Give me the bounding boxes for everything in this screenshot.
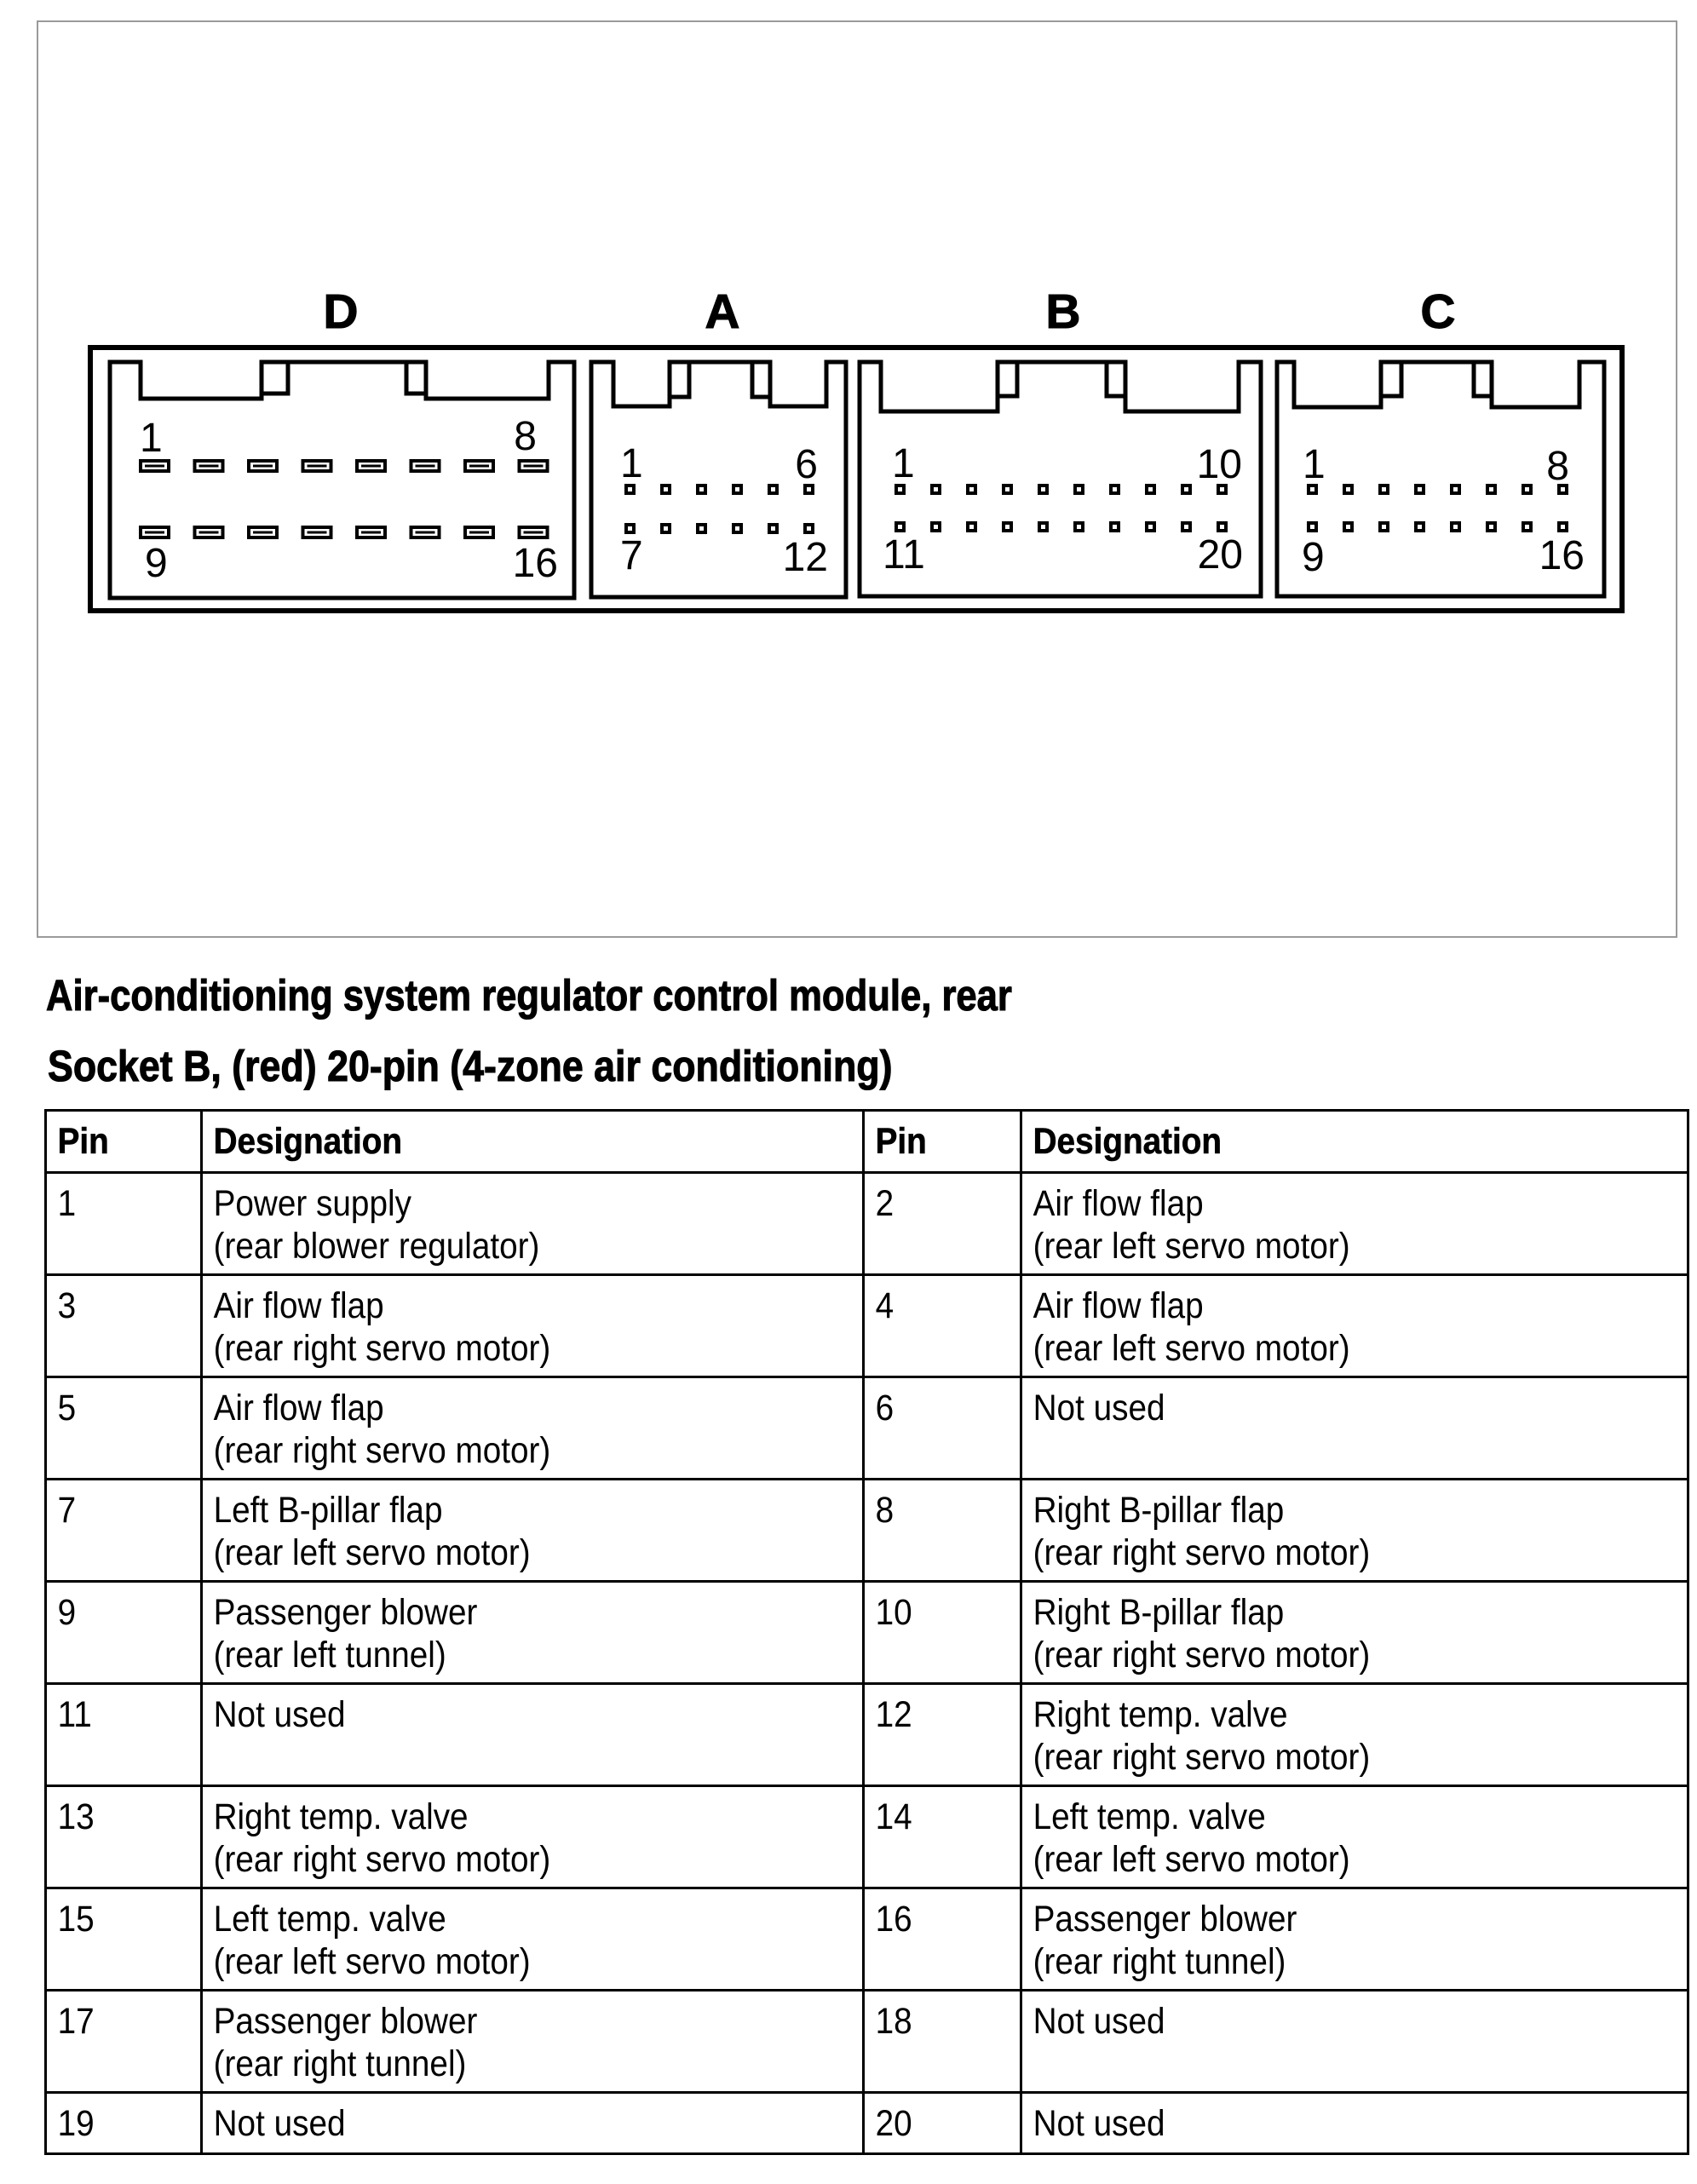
svg-text:C: C — [1420, 284, 1455, 339]
svg-text:10: 10 — [1197, 442, 1242, 487]
svg-text:9: 9 — [145, 541, 168, 586]
svg-text:8: 8 — [514, 414, 537, 459]
svg-text:8: 8 — [1546, 444, 1569, 489]
svg-text:20: 20 — [1198, 532, 1243, 578]
svg-text:9: 9 — [1302, 535, 1325, 580]
svg-text:12: 12 — [783, 535, 828, 580]
svg-text:6: 6 — [795, 442, 818, 487]
svg-text:11: 11 — [883, 532, 925, 578]
svg-text:1: 1 — [140, 416, 163, 461]
svg-text:B: B — [1045, 284, 1080, 339]
svg-text:D: D — [323, 284, 358, 339]
svg-text:1: 1 — [1303, 442, 1326, 487]
svg-text:1: 1 — [892, 441, 915, 486]
svg-text:7: 7 — [620, 533, 643, 578]
svg-text:1: 1 — [620, 441, 643, 486]
svg-text:16: 16 — [1539, 533, 1585, 578]
svg-text:A: A — [705, 284, 739, 339]
svg-text:16: 16 — [513, 541, 558, 586]
